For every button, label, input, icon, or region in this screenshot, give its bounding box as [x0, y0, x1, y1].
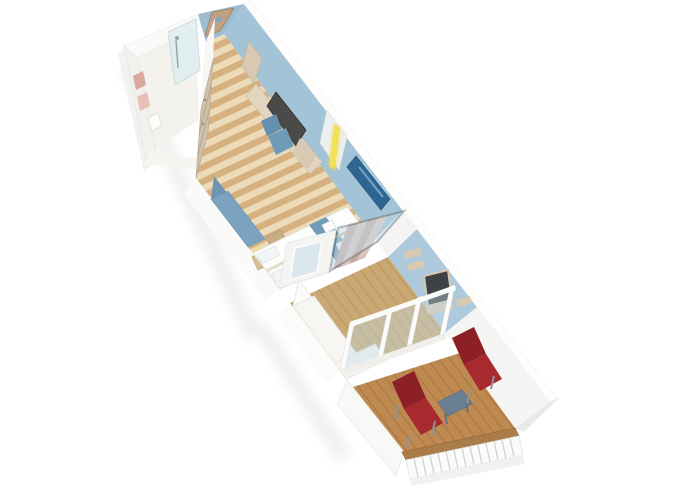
floorplan-canvas — [0, 0, 680, 486]
shower-head-icon — [175, 36, 179, 40]
wardrobe-handle — [202, 123, 204, 125]
cabin-floorplan-render — [0, 0, 680, 486]
wardrobe-handle — [204, 99, 206, 101]
